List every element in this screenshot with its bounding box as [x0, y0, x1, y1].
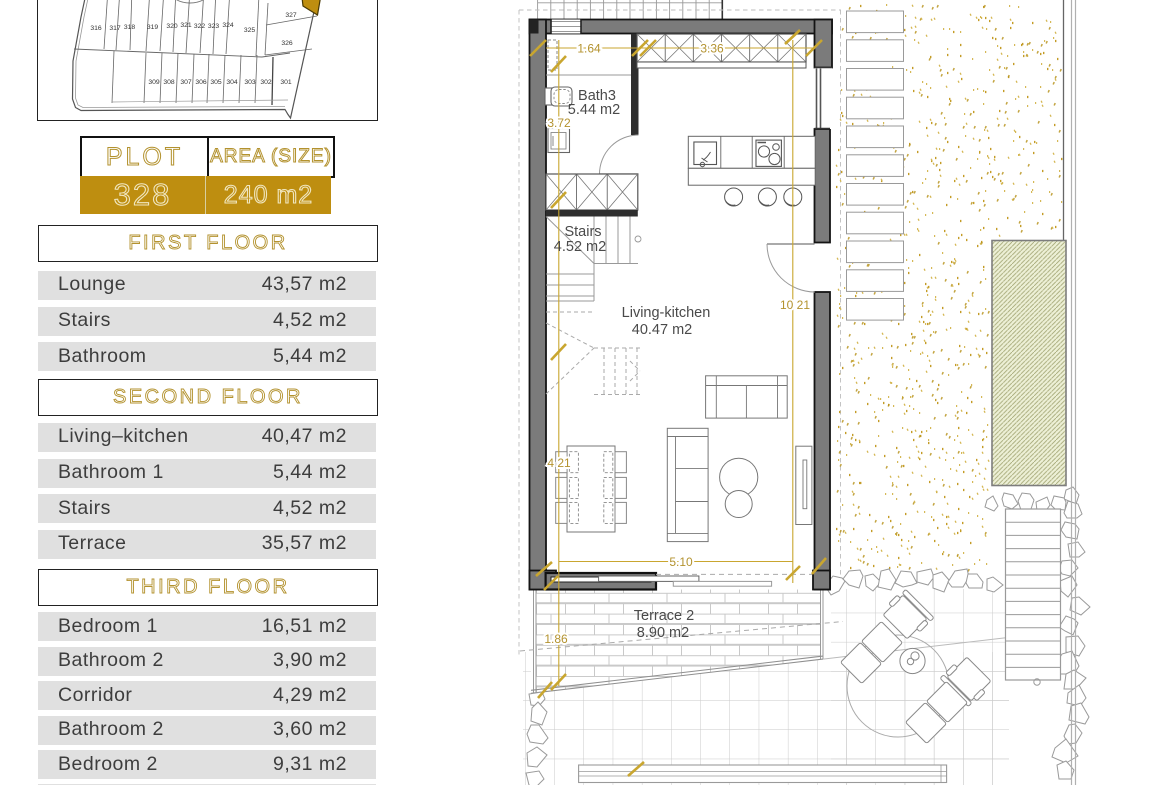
- svg-text:309: 309: [148, 79, 160, 86]
- svg-text:Stairs: Stairs: [564, 224, 601, 240]
- svg-text:320: 320: [166, 23, 178, 30]
- svg-text:326: 326: [281, 40, 293, 47]
- svg-text:322: 322: [194, 23, 206, 30]
- svg-text:317: 317: [109, 25, 121, 32]
- svg-text:305: 305: [210, 79, 222, 86]
- svg-text:Terrace 2: Terrace 2: [634, 608, 694, 624]
- svg-text:321: 321: [180, 22, 192, 29]
- svg-text:325: 325: [244, 27, 256, 34]
- svg-text:1.64: 1.64: [577, 42, 601, 56]
- svg-text:324: 324: [222, 22, 234, 29]
- svg-text:5.10: 5.10: [669, 555, 693, 569]
- svg-text:308: 308: [163, 79, 175, 86]
- svg-text:5.44 m2: 5.44 m2: [568, 102, 620, 118]
- svg-text:4.52 m2: 4.52 m2: [554, 239, 606, 255]
- svg-text:3.72: 3.72: [547, 116, 571, 130]
- svg-text:327: 327: [285, 12, 297, 19]
- svg-text:318: 318: [124, 24, 136, 31]
- svg-text:323: 323: [208, 23, 220, 30]
- svg-text:301: 301: [280, 79, 292, 86]
- svg-text:10 21: 10 21: [780, 298, 810, 312]
- svg-text:4 21: 4 21: [547, 456, 571, 470]
- svg-text:3.36: 3.36: [700, 42, 724, 56]
- svg-text:302: 302: [260, 79, 272, 86]
- svg-text:316: 316: [90, 25, 102, 32]
- svg-text:319: 319: [147, 24, 159, 31]
- svg-text:303: 303: [244, 79, 256, 86]
- svg-text:306: 306: [195, 79, 207, 86]
- svg-text:Living-kitchen: Living-kitchen: [622, 305, 711, 321]
- svg-text:1.86: 1.86: [544, 632, 568, 646]
- svg-text:40.47 m2: 40.47 m2: [632, 322, 692, 338]
- svg-text:8.90 m2: 8.90 m2: [637, 625, 689, 641]
- svg-text:307: 307: [180, 79, 192, 86]
- svg-text:304: 304: [226, 79, 238, 86]
